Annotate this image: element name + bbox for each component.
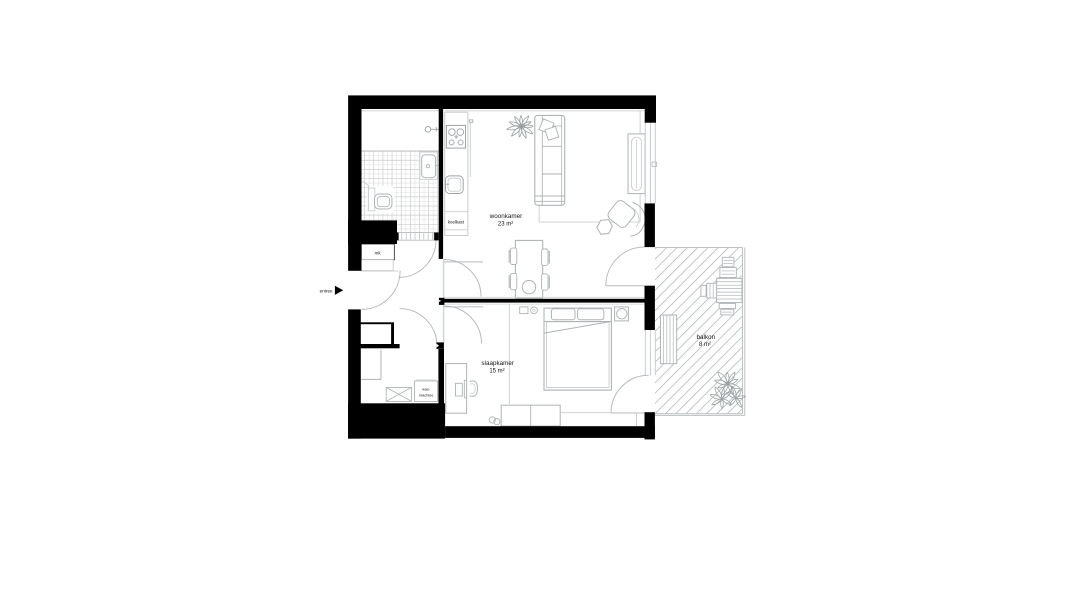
svg-text:woonkamer: woonkamer (489, 213, 523, 220)
svg-text:23 m²: 23 m² (498, 222, 513, 228)
svg-text:balkon: balkon (697, 334, 716, 341)
svg-text:was-: was- (422, 387, 431, 391)
svg-text:koelkast: koelkast (448, 219, 465, 224)
svg-text:slaapkamer: slaapkamer (481, 360, 514, 367)
svg-text:mk: mk (375, 251, 382, 256)
svg-text:machine: machine (419, 394, 433, 398)
svg-text:15 m²: 15 m² (489, 369, 504, 375)
svg-text:8 m²: 8 m² (699, 342, 711, 348)
svg-text:entree: entree (320, 289, 333, 294)
